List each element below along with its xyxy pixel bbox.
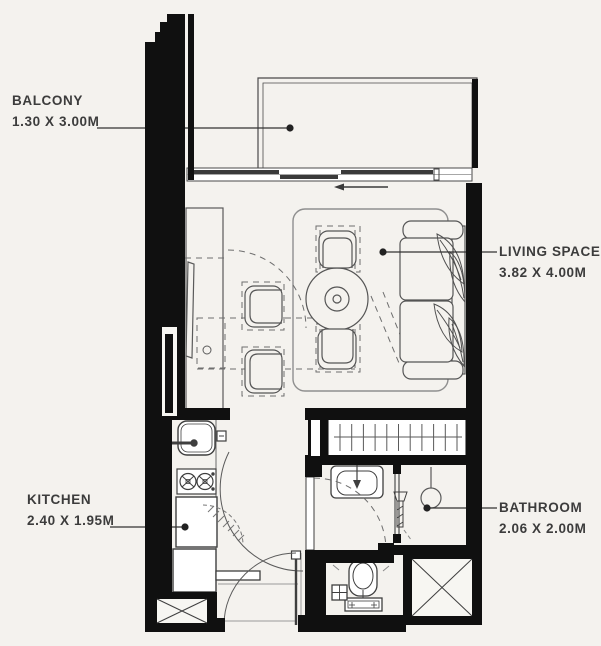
balcony-leader [97, 124, 294, 131]
living-space-label: LIVING SPACE 3.82 X 4.00M [499, 241, 600, 283]
kitchen-room-name: KITCHEN [27, 489, 115, 510]
bathroom-room-name: BATHROOM [499, 497, 587, 518]
cabinet-handle [217, 431, 226, 441]
wall-strip [188, 14, 194, 180]
tv-console [186, 208, 223, 410]
bathroom-top-wall [305, 408, 468, 420]
divider-step [378, 543, 394, 551]
bathroom-label: BATHROOM 2.06 X 2.00M [499, 497, 587, 539]
wardrobe-door-inset [311, 420, 320, 456]
living-space-room-name: LIVING SPACE [499, 241, 600, 262]
kitchen-wall [145, 408, 230, 420]
kitchen-label: KITCHEN 2.40 X 1.95M [27, 489, 115, 531]
kitchen-fixtures [162, 420, 244, 592]
base-cabinet [173, 549, 216, 592]
sofa [400, 221, 465, 379]
living-space-room-dimensions: 3.82 X 4.00M [499, 262, 600, 283]
bathroom-door-pier [305, 455, 322, 477]
balcony-room-dimensions: 1.30 X 3.00M [12, 111, 100, 132]
chair [319, 231, 356, 268]
chair [245, 286, 282, 327]
toilet [345, 560, 382, 611]
entry-door-swing [224, 553, 296, 625]
sliding-panel [341, 170, 433, 174]
balcony-edge-wall [472, 79, 478, 168]
bathroom-room-dimensions: 2.06 X 2.00M [499, 518, 587, 539]
wall-recess [162, 327, 177, 416]
base-cabinet [176, 497, 217, 547]
chair [245, 350, 282, 393]
kitchen-room-dimensions: 2.40 X 1.95M [27, 510, 115, 531]
sliding-panel [191, 170, 279, 174]
entry-door [224, 551, 301, 625]
bathroom-leader [423, 504, 497, 511]
dining-table [306, 268, 368, 330]
shaft-right [403, 550, 482, 625]
balcony-label: BALCONY 1.30 X 3.00M [12, 90, 100, 132]
shaft-left [145, 592, 217, 632]
floor-plan: BALCONY 1.30 X 3.00M LIVING SPACE 3.82 X… [0, 0, 601, 646]
stove [177, 469, 216, 494]
balcony-room-name: BALCONY [12, 90, 100, 111]
entry-console [216, 571, 260, 580]
floor-drain [332, 585, 347, 600]
shower-head [421, 488, 441, 508]
bottom-wall-right [298, 615, 406, 632]
chair [318, 329, 356, 369]
slide-direction-arrow [334, 184, 388, 191]
sliding-panel [280, 175, 338, 179]
wardrobe [328, 418, 466, 458]
bathroom-wall-band [305, 455, 468, 465]
right-wall [466, 183, 482, 553]
shower-mixer [394, 492, 407, 501]
entry-area [216, 452, 303, 625]
shower [393, 465, 441, 543]
balcony-sliding-door [187, 168, 472, 191]
balcony-outline [258, 78, 477, 168]
